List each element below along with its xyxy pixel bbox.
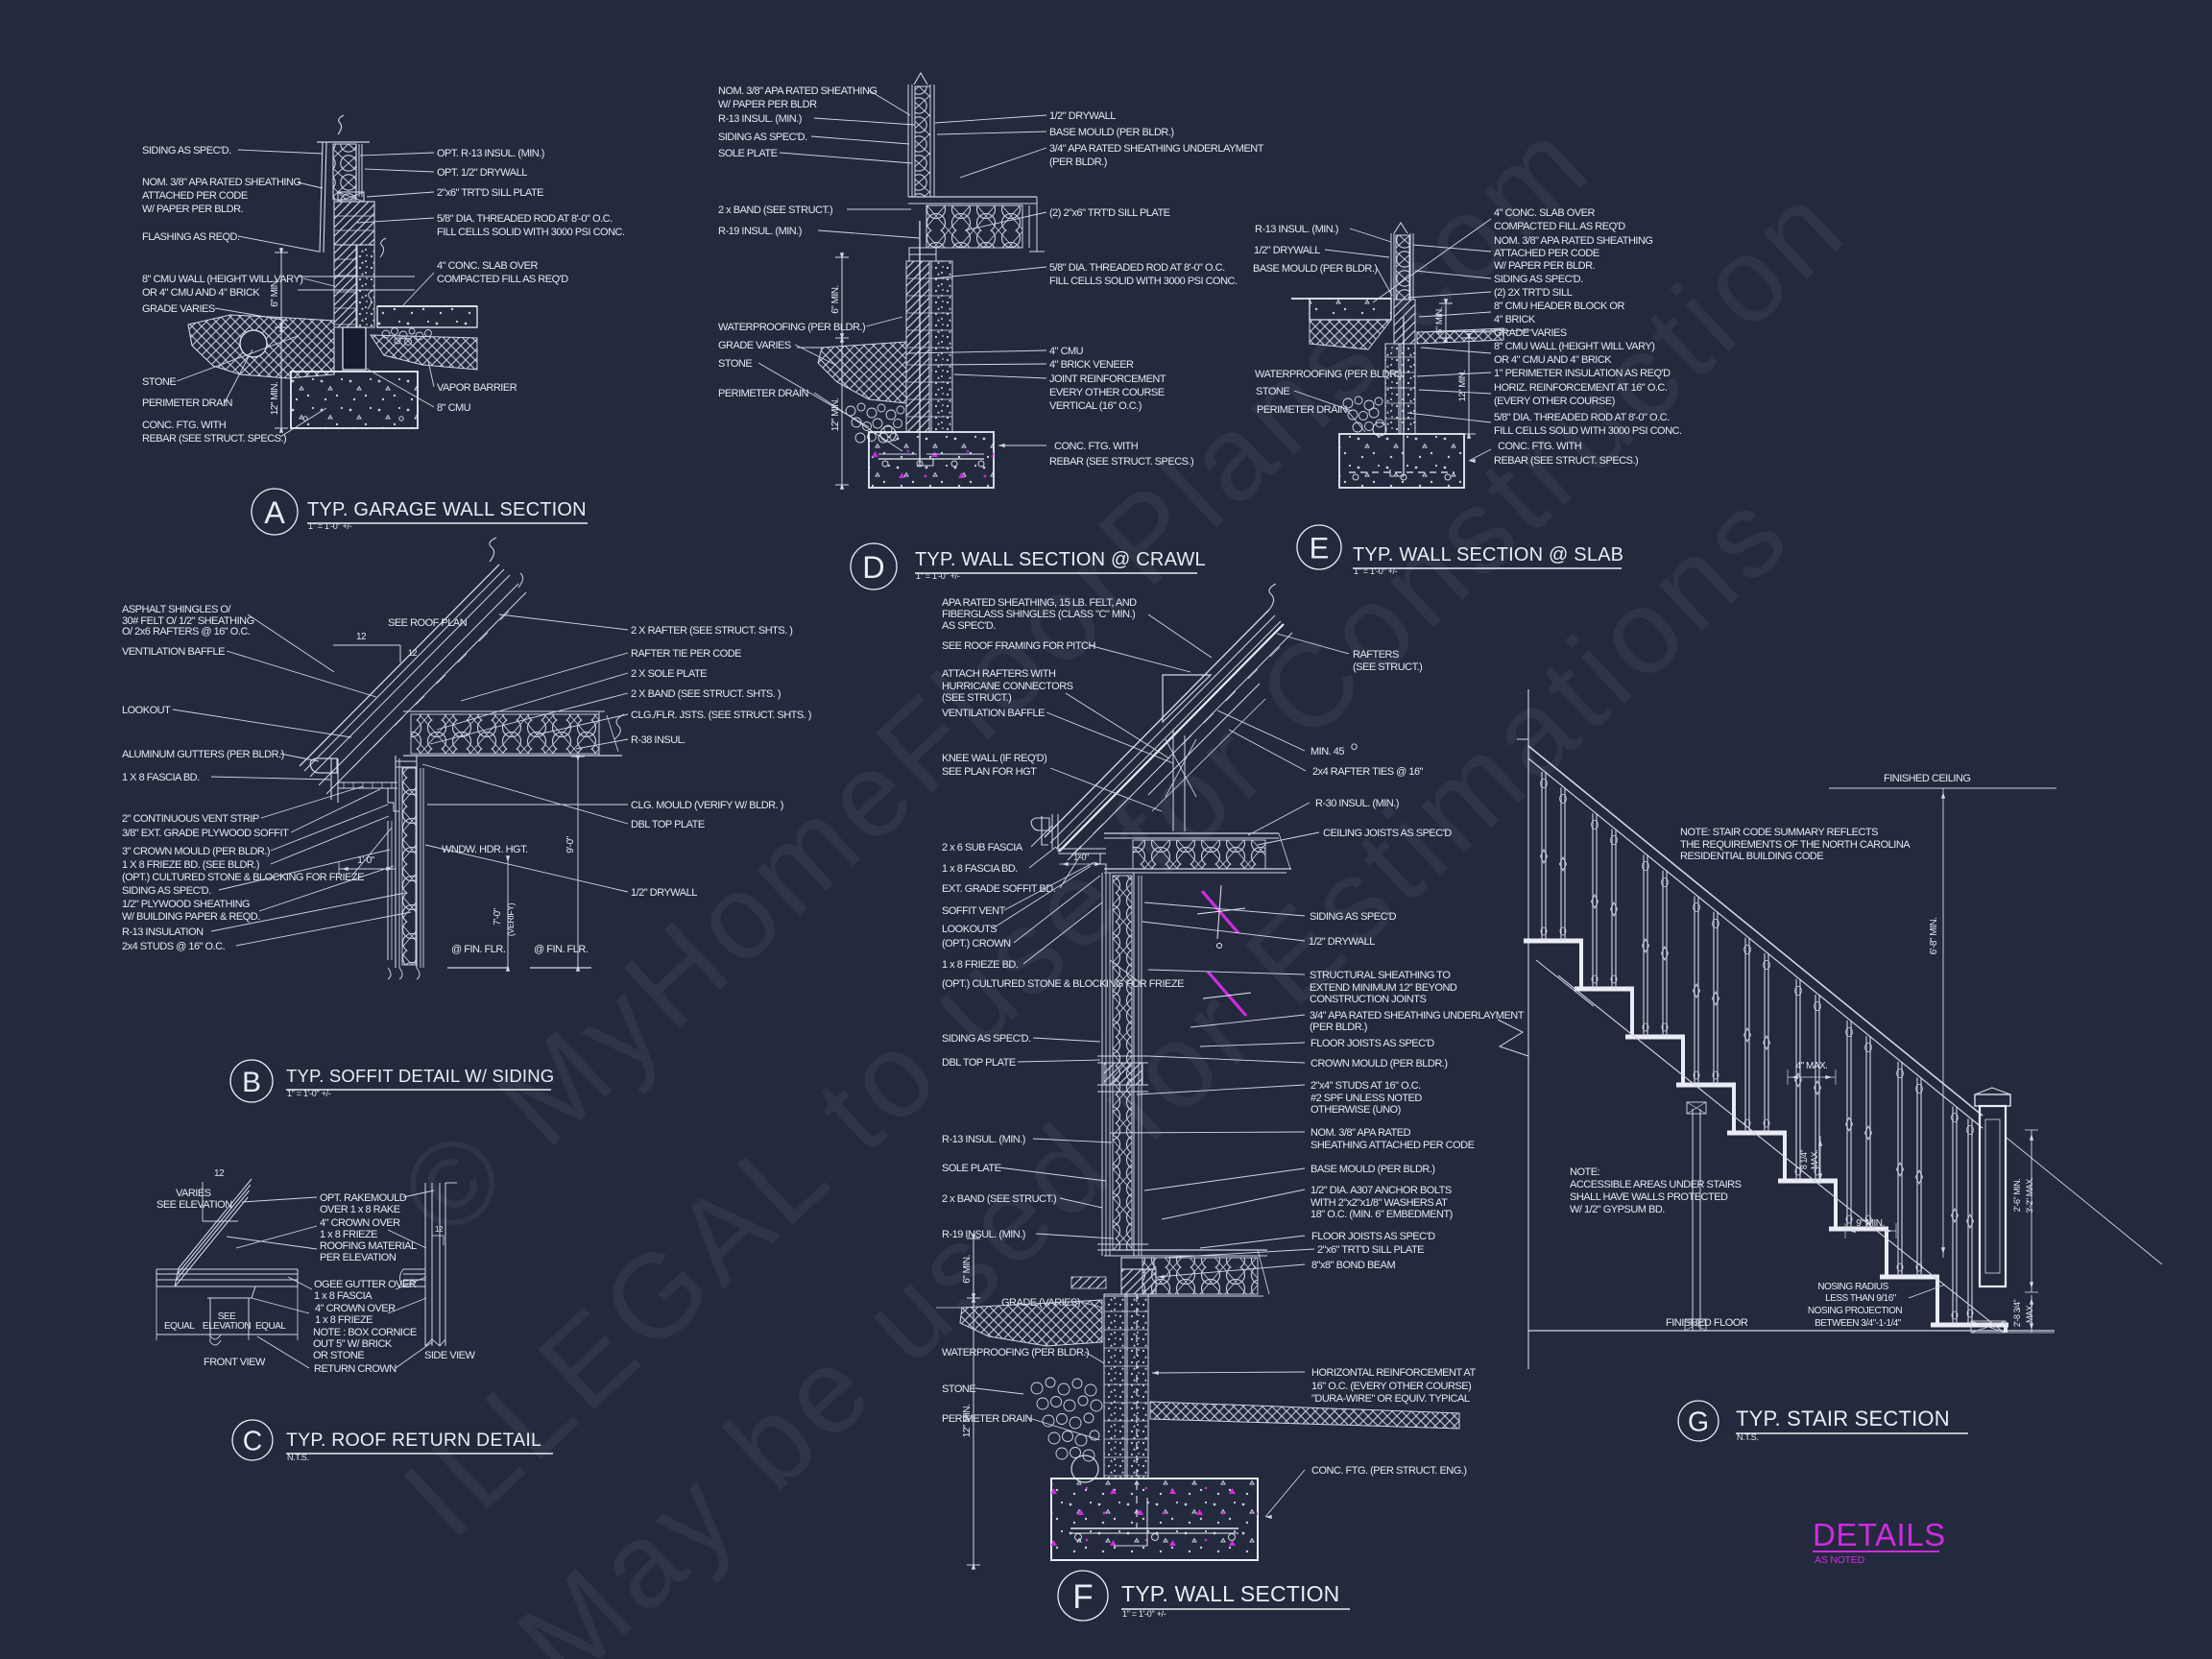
svg-text:8" CMU: 8" CMU xyxy=(437,402,471,414)
svg-text:1" = 1'-0" +/-: 1" = 1'-0" +/- xyxy=(1122,1609,1166,1619)
svg-text:2x4 STUDS @ 16" O.C.: 2x4 STUDS @ 16" O.C. xyxy=(122,941,226,952)
svg-text:ROOFING MATERIAL: ROOFING MATERIAL xyxy=(320,1240,417,1252)
svg-text:CONSTRUCTION JOINTS: CONSTRUCTION JOINTS xyxy=(1310,994,1426,1005)
svg-text:JOINT REINFORCEMENT: JOINT REINFORCEMENT xyxy=(1049,373,1166,385)
svg-text:2 x BAND (SEE STRUCT.): 2 x BAND (SEE STRUCT.) xyxy=(718,204,832,216)
svg-text:3/4" APA RATED SHEATHING UNDER: 3/4" APA RATED SHEATHING UNDERLAYMENT xyxy=(1310,1010,1525,1022)
svg-text:SOFFIT VENT: SOFFIT VENT xyxy=(942,905,1006,917)
svg-text:NOM. 3/8" APA RATED SHEATHING: NOM. 3/8" APA RATED SHEATHING xyxy=(1494,235,1652,247)
svg-text:12" MIN.: 12" MIN. xyxy=(962,1405,973,1438)
svg-text:12: 12 xyxy=(214,1168,225,1179)
svg-text:OR 4" CMU AND 4" BRICK: OR 4" CMU AND 4" BRICK xyxy=(1494,354,1612,366)
svg-text:FLOOR JOISTS AS SPEC'D: FLOOR JOISTS AS SPEC'D xyxy=(1311,1231,1435,1242)
svg-text:THE REQUIREMENTS OF THE NORTH: THE REQUIREMENTS OF THE NORTH CAROLINA xyxy=(1680,839,1911,851)
svg-text:TYP. WALL SECTION @ CRAWL: TYP. WALL SECTION @ CRAWL xyxy=(915,549,1206,570)
svg-text:1/2" PLYWOOD SHEATHING: 1/2" PLYWOOD SHEATHING xyxy=(122,899,250,910)
svg-text:EQUAL: EQUAL xyxy=(164,1321,195,1332)
svg-text:8" CMU HEADER BLOCK OR: 8" CMU HEADER BLOCK OR xyxy=(1494,301,1624,312)
svg-text:OR 4" CMU AND 4" BRICK: OR 4" CMU AND 4" BRICK xyxy=(142,287,260,299)
svg-text:CLG./FLR. JSTS. (SEE STRUCT. S: CLG./FLR. JSTS. (SEE STRUCT. SHTS. ) xyxy=(631,709,811,721)
svg-text:FLASHING AS REQD.: FLASHING AS REQD. xyxy=(142,231,240,243)
svg-text:SHALL HAVE WALLS PROTECTED: SHALL HAVE WALLS PROTECTED xyxy=(1570,1191,1728,1203)
svg-text:SIDING AS SPEC'D.: SIDING AS SPEC'D. xyxy=(1494,274,1583,285)
svg-text:3/4" APA RATED SHEATHING UNDER: 3/4" APA RATED SHEATHING UNDERLAYMENT xyxy=(1049,143,1264,155)
svg-text:APA RATED SHEATHING, 15 LB. FE: APA RATED SHEATHING, 15 LB. FELT, AND xyxy=(942,597,1137,609)
svg-text:6" MIN.: 6" MIN. xyxy=(830,285,841,314)
svg-text:12" MIN.: 12" MIN. xyxy=(270,382,280,416)
svg-text:ACCESSIBLE AREAS UNDER STAIRS: ACCESSIBLE AREAS UNDER STAIRS xyxy=(1570,1179,1742,1190)
svg-text:EXT. GRADE SOFFIT BD.: EXT. GRADE SOFFIT BD. xyxy=(942,883,1056,895)
svg-text:1/2" DRYWALL: 1/2" DRYWALL xyxy=(1049,110,1116,122)
svg-text:"DURA-WIRE" OR EQUIV. TYPICAL: "DURA-WIRE" OR EQUIV. TYPICAL xyxy=(1311,1393,1470,1405)
svg-text:OPT. R-13 INSUL. (MIN.): OPT. R-13 INSUL. (MIN.) xyxy=(437,148,544,159)
svg-text:ATTACHED PER CODE: ATTACHED PER CODE xyxy=(142,190,248,202)
svg-text:BASE MOULD (PER BLDR.): BASE MOULD (PER BLDR.) xyxy=(1253,263,1378,275)
svg-text:2 X SOLE PLATE: 2 X SOLE PLATE xyxy=(631,668,707,680)
svg-text:FRONT VIEW: FRONT VIEW xyxy=(204,1357,266,1368)
svg-text:LOOKOUTS: LOOKOUTS xyxy=(942,924,997,935)
svg-text:SIDING AS SPEC'D.: SIDING AS SPEC'D. xyxy=(718,132,807,143)
svg-text:16" O.C. (EVERY OTHER COURSE): 16" O.C. (EVERY OTHER COURSE) xyxy=(1311,1381,1471,1392)
svg-text:STONE: STONE xyxy=(718,358,752,370)
svg-text:WATERPROOFING (PER BLDR.): WATERPROOFING (PER BLDR.) xyxy=(718,322,865,333)
svg-text:WATERPROOFING (PER BLDR.): WATERPROOFING (PER BLDR.) xyxy=(1255,369,1402,380)
svg-text:STONE: STONE xyxy=(942,1383,975,1395)
svg-text:1 X 8 FRIEZE BD. (SEE BLDR.): 1 X 8 FRIEZE BD. (SEE BLDR.) xyxy=(122,859,259,871)
svg-text:EVERY OTHER COURSE: EVERY OTHER COURSE xyxy=(1049,387,1165,398)
svg-text:OPT. RAKEMOULD: OPT. RAKEMOULD xyxy=(320,1192,407,1204)
svg-text:1/2" DIA. A307 ANCHOR BOLTS: 1/2" DIA. A307 ANCHOR BOLTS xyxy=(1310,1185,1452,1196)
svg-text:1 X 8 FASCIA BD.: 1 X 8 FASCIA BD. xyxy=(122,772,200,783)
svg-text:TYP. STAIR SECTION: TYP. STAIR SECTION xyxy=(1736,1407,1950,1431)
svg-text:GRADE VARIES: GRADE VARIES xyxy=(1494,327,1567,339)
svg-text:2"x4" STUDS AT 16" O.C.: 2"x4" STUDS AT 16" O.C. xyxy=(1310,1080,1421,1092)
svg-text:8" CMU WALL (HEIGHT WILL VARY): 8" CMU WALL (HEIGHT WILL VARY) xyxy=(1494,341,1654,352)
svg-text:O: O xyxy=(1351,742,1358,752)
svg-text:R-13 INSUL. (MIN.): R-13 INSUL. (MIN.) xyxy=(718,113,802,125)
svg-text:9" MIN.: 9" MIN. xyxy=(1856,1218,1885,1229)
svg-text:OVER 1 x 8 RAKE: OVER 1 x 8 RAKE xyxy=(320,1204,400,1215)
svg-text:TYP. GARAGE WALL SECTION: TYP. GARAGE WALL SECTION xyxy=(307,499,587,520)
svg-text:CONC. FTG. (PER STRUCT. ENG.): CONC. FTG. (PER STRUCT. ENG.) xyxy=(1311,1465,1467,1477)
svg-text:OTHERWISE (UNO): OTHERWISE (UNO) xyxy=(1310,1104,1401,1116)
svg-text:PERIMETER DRAIN: PERIMETER DRAIN xyxy=(718,388,809,399)
svg-text:E: E xyxy=(1310,532,1330,565)
svg-text:(EVERY OTHER COURSE): (EVERY OTHER COURSE) xyxy=(1494,396,1615,407)
svg-text:2 x BAND (SEE STRUCT.): 2 x BAND (SEE STRUCT.) xyxy=(942,1193,1056,1205)
svg-text:(PER BLDR.): (PER BLDR.) xyxy=(1049,156,1107,168)
svg-text:6" MIN.: 6" MIN. xyxy=(962,1255,973,1284)
svg-text:LESS THAN 9/16": LESS THAN 9/16" xyxy=(1825,1293,1897,1304)
svg-text:SEE ROOF FRAMING FOR PITCH: SEE ROOF FRAMING FOR PITCH xyxy=(942,640,1096,652)
svg-text:1'-0": 1'-0" xyxy=(1073,853,1089,862)
svg-text:(2) 2X TRT'D SILL: (2) 2X TRT'D SILL xyxy=(1494,287,1573,299)
svg-text:3'-2" MAX.: 3'-2" MAX. xyxy=(2025,1177,2034,1213)
svg-text:12: 12 xyxy=(408,648,418,658)
svg-text:W/ PAPER PER BLDR.: W/ PAPER PER BLDR. xyxy=(1494,260,1596,272)
svg-text:NOSING RADIUS: NOSING RADIUS xyxy=(1817,1282,1888,1292)
svg-text:(SEE STRUCT.): (SEE STRUCT.) xyxy=(1353,661,1422,673)
svg-text:2 X RAFTER (SEE STRUCT. SHTS.: 2 X RAFTER (SEE STRUCT. SHTS. ) xyxy=(631,625,792,637)
svg-text:PERIMETER DRAIN: PERIMETER DRAIN xyxy=(142,397,233,409)
svg-text:3/8" EXT. GRADE PLYWOOD SOFFIT: 3/8" EXT. GRADE PLYWOOD SOFFIT xyxy=(122,828,289,839)
svg-text:1/2" DRYWALL: 1/2" DRYWALL xyxy=(1309,936,1375,948)
svg-text:SEE ELEVATION: SEE ELEVATION xyxy=(156,1199,232,1211)
svg-text:1 x 8 FRIEZE BD.: 1 x 8 FRIEZE BD. xyxy=(942,959,1019,971)
svg-text:CONC. FTG. WITH: CONC. FTG. WITH xyxy=(1498,441,1582,452)
svg-text:VARIES: VARIES xyxy=(176,1188,211,1199)
svg-text:RESIDENTIAL BUILDING CODE: RESIDENTIAL BUILDING CODE xyxy=(1680,851,1823,862)
svg-text:NOM. 3/8" APA RATED SHEATHING: NOM. 3/8" APA RATED SHEATHING xyxy=(718,85,877,97)
svg-text:18" O.C. (MIN. 6" EMBEDMENT): 18" O.C. (MIN. 6" EMBEDMENT) xyxy=(1310,1209,1453,1220)
svg-text:@ FIN. FLR.: @ FIN. FLR. xyxy=(534,944,589,955)
svg-text:FILL CELLS SOLID WITH 3000 PSI: FILL CELLS SOLID WITH 3000 PSI CONC. xyxy=(437,227,625,238)
svg-text:AS NOTED: AS NOTED xyxy=(1815,1554,1865,1566)
svg-text:4" CROWN OVER: 4" CROWN OVER xyxy=(320,1217,400,1229)
svg-text:R-13 INSULATION: R-13 INSULATION xyxy=(122,926,204,938)
svg-text:12" MIN.: 12" MIN. xyxy=(1457,371,1468,402)
svg-text:1 x 8 FRIEZE: 1 x 8 FRIEZE xyxy=(320,1229,377,1240)
svg-text:O/ 2x6 RAFTERS @ 16" O.C.: O/ 2x6 RAFTERS @ 16" O.C. xyxy=(122,626,251,637)
svg-text:C: C xyxy=(243,1427,262,1457)
svg-text:NOTE:: NOTE: xyxy=(1570,1166,1600,1178)
svg-text:(OPT.) CULTURED STONE & BLOCKI: (OPT.) CULTURED STONE & BLOCKING FOR FRI… xyxy=(122,872,364,883)
svg-text:ASPHALT SHINGLES O/: ASPHALT SHINGLES O/ xyxy=(122,604,231,615)
svg-text:REBAR (SEE STRUCT. SPECS.): REBAR (SEE STRUCT. SPECS.) xyxy=(1494,455,1638,467)
svg-text:(PER BLDR.): (PER BLDR.) xyxy=(1310,1022,1367,1033)
svg-text:5/8" DIA. THREADED ROD AT 8'-0: 5/8" DIA. THREADED ROD AT 8'-0" O.C. xyxy=(1494,412,1670,423)
svg-text:PERIMETER DRAIN: PERIMETER DRAIN xyxy=(942,1413,1033,1425)
svg-text:EQUAL: EQUAL xyxy=(255,1321,286,1332)
svg-text:PER ELEVATION: PER ELEVATION xyxy=(320,1252,397,1263)
svg-text:8"x8" BOND BEAM: 8"x8" BOND BEAM xyxy=(1311,1260,1395,1271)
svg-text:NOTE: STAIR CODE SUMMARY REFLE: NOTE: STAIR CODE SUMMARY REFLECTS xyxy=(1680,827,1878,838)
svg-text:1" PERIMETER INSULATION AS REQ: 1" PERIMETER INSULATION AS REQ'D xyxy=(1494,368,1671,379)
svg-text:MAX.: MAX. xyxy=(1810,1150,1819,1169)
svg-text:R-30 INSUL. (MIN.): R-30 INSUL. (MIN.) xyxy=(1315,798,1399,809)
svg-text:BASE MOULD (PER BLDR.): BASE MOULD (PER BLDR.) xyxy=(1049,127,1174,138)
svg-text:WATERPROOFING (PER BLDR.): WATERPROOFING (PER BLDR.) xyxy=(942,1347,1089,1358)
svg-text:CROWN MOULD (PER BLDR.): CROWN MOULD (PER BLDR.) xyxy=(1310,1058,1448,1070)
svg-text:SHEATHING ATTACHED PER CODE: SHEATHING ATTACHED PER CODE xyxy=(1310,1140,1475,1151)
svg-text:2"x6" TRT'D SILL PLATE: 2"x6" TRT'D SILL PLATE xyxy=(437,187,543,199)
svg-text:SOLE PLATE: SOLE PLATE xyxy=(718,148,778,159)
svg-text:SOLE PLATE: SOLE PLATE xyxy=(942,1163,1001,1174)
svg-text:(2) 2"x6" TRT'D SILL PLATE: (2) 2"x6" TRT'D SILL PLATE xyxy=(1049,207,1170,219)
svg-text:4" CONC. SLAB OVER: 4" CONC. SLAB OVER xyxy=(1494,207,1595,219)
svg-text:STONE: STONE xyxy=(1256,386,1289,397)
svg-text:DBL TOP PLATE: DBL TOP PLATE xyxy=(942,1057,1016,1069)
svg-text:COMPACTED FILL AS REQ'D: COMPACTED FILL AS REQ'D xyxy=(437,274,568,285)
svg-text:RETURN CROWN: RETURN CROWN xyxy=(314,1363,397,1375)
svg-text:(OPT.) CULTURED STONE & BLOCKI: (OPT.) CULTURED STONE & BLOCKING FOR FRI… xyxy=(942,978,1184,990)
svg-text:OUT 5" W/ BRICK: OUT 5" W/ BRICK xyxy=(313,1338,393,1350)
svg-text:1 x 8 FRIEZE: 1 x 8 FRIEZE xyxy=(315,1314,373,1326)
svg-text:TYP. SOFFIT DETAIL W/ SIDING: TYP. SOFFIT DETAIL W/ SIDING xyxy=(286,1066,554,1086)
svg-text:SIDING AS SPEC'D.: SIDING AS SPEC'D. xyxy=(122,885,211,897)
svg-text:OGEE GUTTER OVER: OGEE GUTTER OVER xyxy=(314,1279,417,1290)
svg-text:VENTILATION BAFFLE: VENTILATION BAFFLE xyxy=(122,646,225,658)
svg-text:2 X BAND (SEE STRUCT. SHTS. ): 2 X BAND (SEE STRUCT. SHTS. ) xyxy=(631,688,781,700)
svg-text:REBAR (SEE STRUCT. SPECS.): REBAR (SEE STRUCT. SPECS.) xyxy=(142,433,286,445)
svg-text:SEE ROOF PLAN: SEE ROOF PLAN xyxy=(388,617,468,629)
svg-text:R-38 INSUL.: R-38 INSUL. xyxy=(631,734,685,746)
svg-text:2" CONTINUOUS VENT STRIP: 2" CONTINUOUS VENT STRIP xyxy=(122,813,259,825)
svg-text:STRUCTURAL SHEATHING TO: STRUCTURAL SHEATHING TO xyxy=(1310,970,1451,981)
svg-text:SIDING AS SPEC'D: SIDING AS SPEC'D xyxy=(1310,911,1397,923)
svg-text:5/8" DIA. THREADED ROD AT 8'-0: 5/8" DIA. THREADED ROD AT 8'-0" O.C. xyxy=(1049,262,1225,274)
svg-text:ATTACHED PER CODE: ATTACHED PER CODE xyxy=(1494,248,1599,259)
svg-text:1" = 1'-0" +/-: 1" = 1'-0" +/- xyxy=(287,1089,331,1098)
svg-text:12" MIN.: 12" MIN. xyxy=(830,398,841,432)
svg-text:GRADE VARIES: GRADE VARIES xyxy=(718,340,791,351)
svg-text:(OPT.) CROWN: (OPT.) CROWN xyxy=(942,938,1011,950)
svg-text:1 x 8 FASCIA BD.: 1 x 8 FASCIA BD. xyxy=(942,863,1018,875)
svg-text:HORIZONTAL REINFORCEMENT AT: HORIZONTAL REINFORCEMENT AT xyxy=(1311,1367,1476,1379)
svg-text:PERIMETER DRAIN: PERIMETER DRAIN xyxy=(1257,404,1348,416)
svg-text:SIDING AS SPEC'D.: SIDING AS SPEC'D. xyxy=(142,145,231,156)
svg-text:HORIZ. REINFORCEMENT AT 16" O.: HORIZ. REINFORCEMENT AT 16" O.C. xyxy=(1494,382,1668,394)
svg-text:BASE MOULD (PER BLDR.): BASE MOULD (PER BLDR.) xyxy=(1310,1164,1435,1175)
svg-text:1" = 1'-0" +/-: 1" = 1'-0" +/- xyxy=(916,571,960,581)
svg-text:2'-6" MIN.: 2'-6" MIN. xyxy=(2012,1179,2022,1212)
svg-text:EXTEND MINIMUM 12" BEYOND: EXTEND MINIMUM 12" BEYOND xyxy=(1310,982,1457,994)
svg-text:4" BRICK VENEER: 4" BRICK VENEER xyxy=(1049,359,1134,371)
svg-text:CEILING JOISTS AS SPEC'D: CEILING JOISTS AS SPEC'D xyxy=(1323,828,1452,839)
svg-text:LOOKOUT: LOOKOUT xyxy=(122,705,171,716)
svg-text:(SEE STRUCT.): (SEE STRUCT.) xyxy=(942,692,1011,704)
svg-text:4" CROWN OVER: 4" CROWN OVER xyxy=(315,1303,396,1314)
svg-text:DBL TOP PLATE: DBL TOP PLATE xyxy=(631,819,705,830)
svg-text:8 1/4": 8 1/4" xyxy=(1799,1150,1809,1170)
svg-text:TYP. WALL SECTION @ SLAB: TYP. WALL SECTION @ SLAB xyxy=(1353,544,1623,565)
svg-text:VENTILATION BAFFLE: VENTILATION BAFFLE xyxy=(942,708,1045,719)
svg-text:4" BRICK: 4" BRICK xyxy=(1494,314,1536,325)
svg-text:CONC. FTG. WITH: CONC. FTG. WITH xyxy=(1054,441,1139,452)
svg-text:TYP. WALL SECTION: TYP. WALL SECTION xyxy=(1121,1581,1340,1606)
svg-text:6" MIN.: 6" MIN. xyxy=(270,278,280,307)
svg-text:1/2" DRYWALL: 1/2" DRYWALL xyxy=(1254,245,1320,256)
svg-text:@ FIN. FLR.: @ FIN. FLR. xyxy=(451,944,506,955)
svg-text:2 x 6 SUB FASCIA: 2 x 6 SUB FASCIA xyxy=(942,842,1023,854)
svg-text:2x4 RAFTER TIES @ 16": 2x4 RAFTER TIES @ 16" xyxy=(1312,766,1424,778)
svg-text:D: D xyxy=(862,550,884,585)
svg-text:1/2" DRYWALL: 1/2" DRYWALL xyxy=(631,887,697,899)
svg-text:4" CMU: 4" CMU xyxy=(1049,346,1084,357)
svg-text:5/8" DIA. THREADED ROD AT 8'-0: 5/8" DIA. THREADED ROD AT 8'-0" O.C. xyxy=(437,213,613,225)
svg-text:TYP. ROOF RETURN DETAIL: TYP. ROOF RETURN DETAIL xyxy=(286,1430,541,1451)
svg-text:RAFTERS: RAFTERS xyxy=(1353,649,1399,661)
svg-text:VAPOR BARRIER: VAPOR BARRIER xyxy=(437,382,517,394)
svg-text:NOTE : BOX CORNICE: NOTE : BOX CORNICE xyxy=(313,1327,417,1338)
svg-text:1" = 1'-0" +/-: 1" = 1'-0" +/- xyxy=(1354,566,1398,576)
svg-text:NOM. 3/8" APA RATED: NOM. 3/8" APA RATED xyxy=(1310,1127,1411,1139)
svg-text:W/ PAPER PER BLDR.: W/ PAPER PER BLDR. xyxy=(142,204,244,215)
svg-text:R-19 INSUL. (MIN.): R-19 INSUL. (MIN.) xyxy=(718,226,802,237)
svg-text:GRADE VARIES: GRADE VARIES xyxy=(142,303,215,315)
svg-text:KNEE WALL (IF REQ'D): KNEE WALL (IF REQ'D) xyxy=(942,753,1046,764)
svg-text:DETAILS: DETAILS xyxy=(1813,1517,1946,1552)
svg-text:W/ BUILDING PAPER & REQD.: W/ BUILDING PAPER & REQD. xyxy=(122,911,260,923)
svg-text:1" = 1'-0" +/-: 1" = 1'-0" +/- xyxy=(308,521,352,531)
svg-text:R-19 INSUL. (MIN.): R-19 INSUL. (MIN.) xyxy=(942,1229,1025,1240)
svg-text:R-13 INSUL. (MIN.): R-13 INSUL. (MIN.) xyxy=(942,1134,1025,1145)
svg-text:MIN. 45: MIN. 45 xyxy=(1310,746,1344,757)
svg-text:WITH 2"x2"x1/8" WASHERS AT: WITH 2"x2"x1/8" WASHERS AT xyxy=(1310,1197,1448,1209)
svg-text:VERTICAL (16" O.C.): VERTICAL (16" O.C.) xyxy=(1049,400,1142,412)
svg-text:R-13 INSUL. (MIN.): R-13 INSUL. (MIN.) xyxy=(1255,224,1338,235)
svg-text:REBAR (SEE STRUCT. SPECS.): REBAR (SEE STRUCT. SPECS.) xyxy=(1049,456,1193,468)
svg-text:4" CONC. SLAB OVER: 4" CONC. SLAB OVER xyxy=(437,260,538,272)
svg-text:W/ 1/2" GYPSUM BD.: W/ 1/2" GYPSUM BD. xyxy=(1570,1204,1665,1215)
svg-text:G: G xyxy=(1688,1407,1709,1438)
svg-text:6'-8" MIN.: 6'-8" MIN. xyxy=(1929,918,1939,955)
svg-text:NOM. 3/8" APA RATED SHEATHING: NOM. 3/8" APA RATED SHEATHING xyxy=(142,177,301,188)
svg-text:OR STONE: OR STONE xyxy=(313,1350,364,1361)
svg-text:CLG. MOULD (VERIFY W/ BLDR. ): CLG. MOULD (VERIFY W/ BLDR. ) xyxy=(631,800,783,811)
svg-text:ATTACH RAFTERS WITH: ATTACH RAFTERS WITH xyxy=(942,668,1056,680)
svg-text:FINISHED FLOOR: FINISHED FLOOR xyxy=(1666,1317,1748,1329)
svg-text:2"x6" TRT'D SILL PLATE: 2"x6" TRT'D SILL PLATE xyxy=(1317,1244,1424,1256)
svg-text:1 x 8 FASCIA: 1 x 8 FASCIA xyxy=(314,1290,373,1302)
svg-text:FILL CELLS SOLID WITH 3000 PSI: FILL CELLS SOLID WITH 3000 PSI CONC. xyxy=(1494,425,1682,437)
svg-text:6" MIN.: 6" MIN. xyxy=(1434,307,1445,334)
svg-text:FLOOR JOISTS AS SPEC'D: FLOOR JOISTS AS SPEC'D xyxy=(1310,1038,1434,1049)
svg-text:ALUMINUM GUTTERS (PER BLDR.): ALUMINUM GUTTERS (PER BLDR.) xyxy=(122,749,284,760)
svg-text:B: B xyxy=(242,1067,261,1098)
svg-text:N.T.S.: N.T.S. xyxy=(287,1453,309,1462)
svg-text:RAFTER TIE PER CODE: RAFTER TIE PER CODE xyxy=(631,648,741,660)
svg-text:A: A xyxy=(264,495,285,530)
svg-text:CONC. FTG. WITH: CONC. FTG. WITH xyxy=(142,420,227,431)
svg-text:ELEVATION: ELEVATION xyxy=(203,1321,251,1332)
svg-text:3" CROWN MOULD (PER BLDR.): 3" CROWN MOULD (PER BLDR.) xyxy=(122,846,270,857)
svg-text:2'-8 3/4": 2'-8 3/4" xyxy=(2012,1299,2022,1327)
svg-text:NOSING PROJECTION: NOSING PROJECTION xyxy=(1808,1306,1902,1316)
svg-text:N.T.S.: N.T.S. xyxy=(1737,1432,1759,1442)
svg-text:SIDE VIEW: SIDE VIEW xyxy=(424,1350,475,1361)
svg-text:SIDING AS SPEC'D.: SIDING AS SPEC'D. xyxy=(942,1033,1031,1045)
svg-text:12: 12 xyxy=(435,1225,444,1234)
svg-text:12: 12 xyxy=(356,632,367,642)
svg-text:FIBERGLASS SHINGLES (CLASS "C": FIBERGLASS SHINGLES (CLASS "C" MIN.) xyxy=(942,609,1135,620)
svg-text:OPT. 1/2" DRYWALL: OPT. 1/2" DRYWALL xyxy=(437,167,527,179)
svg-text:FINISHED CEILING: FINISHED CEILING xyxy=(1884,773,1970,784)
svg-text:AS SPEC'D.: AS SPEC'D. xyxy=(942,620,996,632)
svg-text:W/ PAPER PER BLDR: W/ PAPER PER BLDR xyxy=(718,99,817,110)
svg-text:STONE: STONE xyxy=(142,376,176,388)
svg-text:F: F xyxy=(1072,1578,1093,1616)
svg-text:HURRICANE CONNECTORS: HURRICANE CONNECTORS xyxy=(942,681,1073,692)
svg-text:COMPACTED FILL AS REQ'D: COMPACTED FILL AS REQ'D xyxy=(1494,221,1625,232)
svg-text:SEE PLAN FOR HGT: SEE PLAN FOR HGT xyxy=(942,766,1037,778)
svg-text:4" MAX.: 4" MAX. xyxy=(1796,1061,1828,1071)
svg-text:MAX.: MAX. xyxy=(2025,1304,2034,1323)
svg-text:7'-0": 7'-0" xyxy=(493,907,503,925)
svg-text:FILL CELLS SOLID WITH 3000 PSI: FILL CELLS SOLID WITH 3000 PSI CONC. xyxy=(1049,276,1238,287)
svg-text:WNDW. HDR. HGT.: WNDW. HDR. HGT. xyxy=(442,844,528,855)
svg-text:BETWEEN 3/4"-1-1/4": BETWEEN 3/4"-1-1/4" xyxy=(1815,1318,1902,1329)
svg-text:#2 SPF UNLESS NOTED: #2 SPF UNLESS NOTED xyxy=(1310,1093,1422,1104)
svg-text:9'-0": 9'-0" xyxy=(565,835,576,853)
svg-text:(VERIFY): (VERIFY) xyxy=(506,902,516,936)
